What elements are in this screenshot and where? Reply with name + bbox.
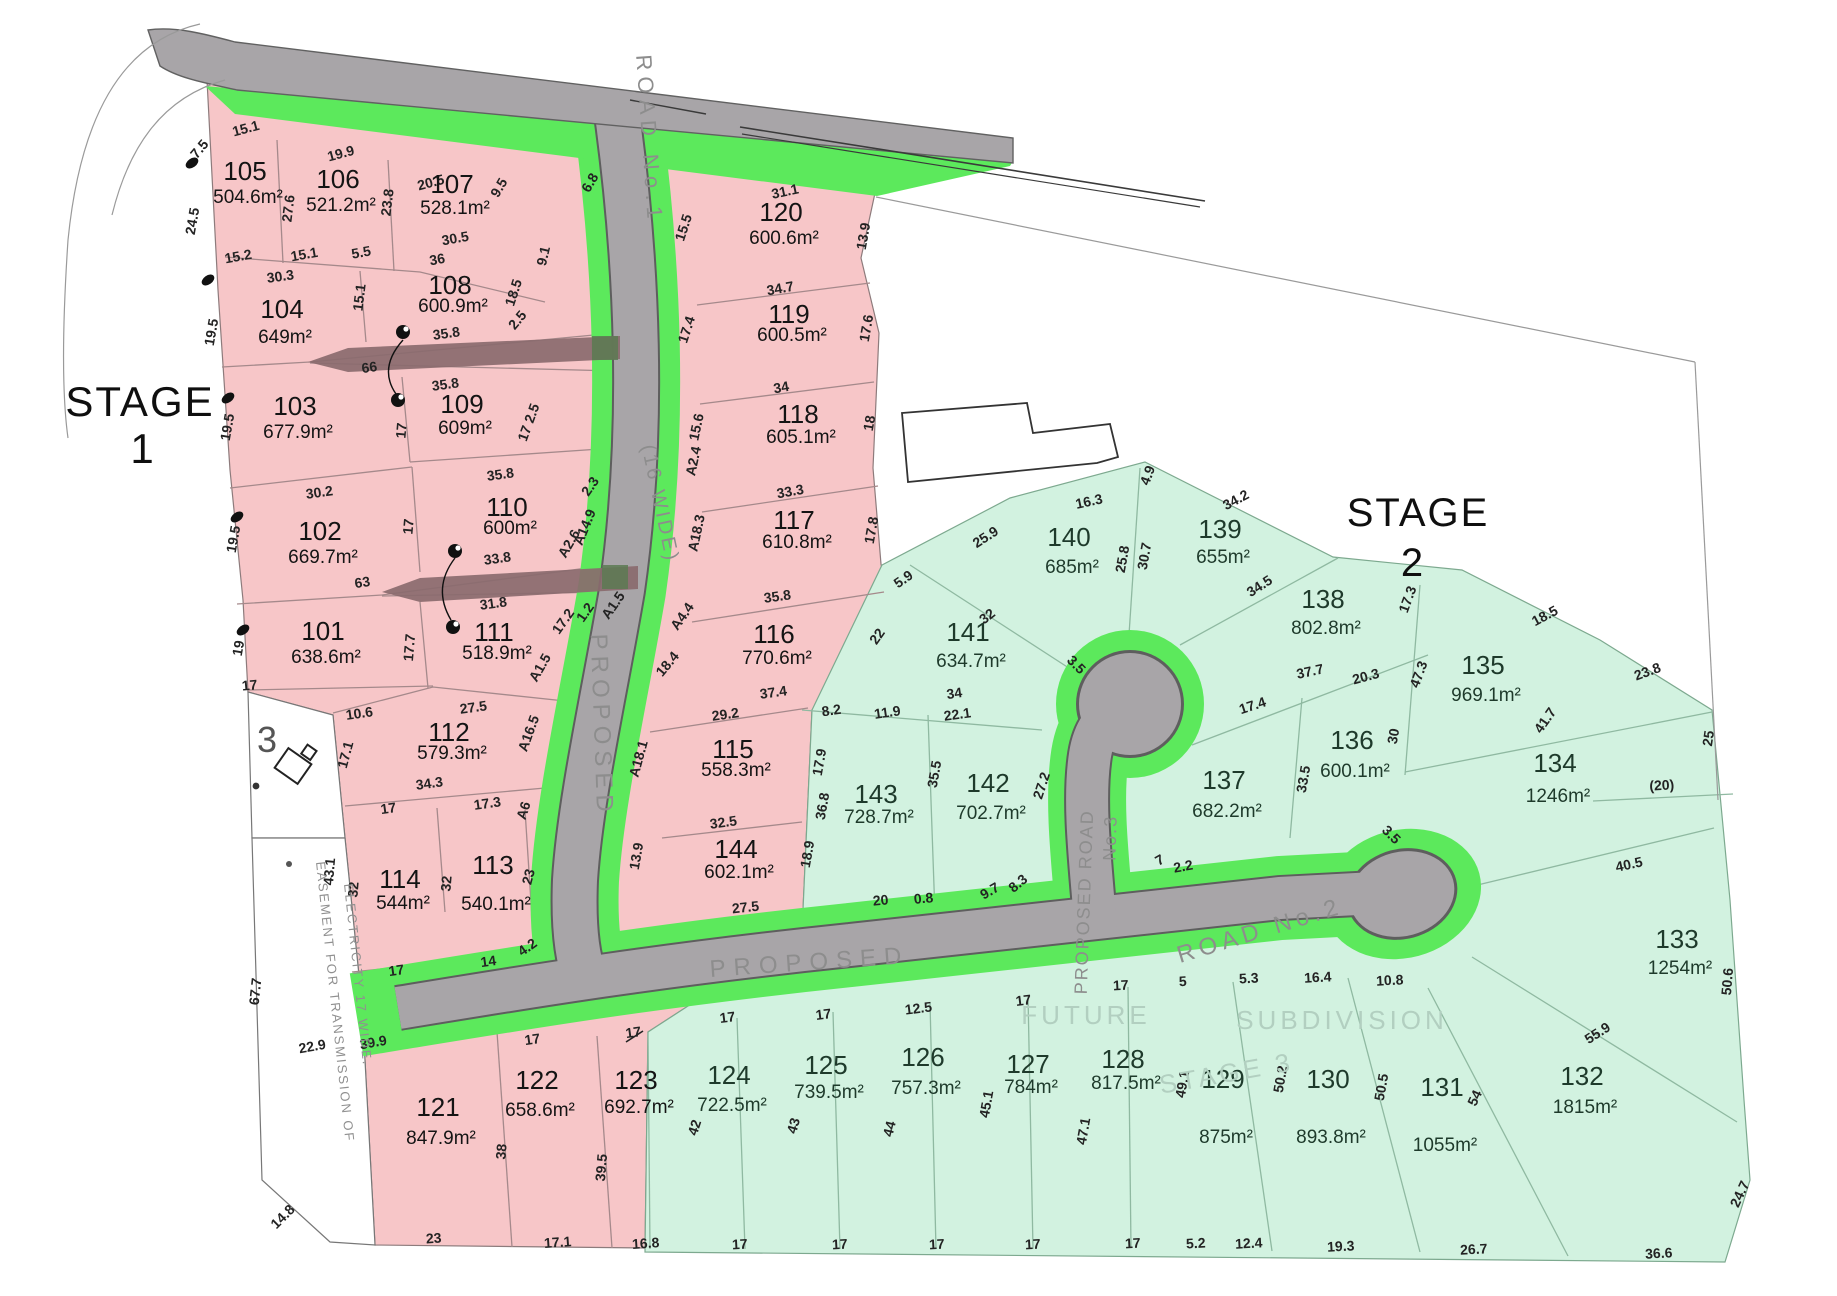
lot-area-129: 875m² xyxy=(1199,1127,1253,1148)
dimension-label-69: 17 xyxy=(379,799,397,817)
lot-area-118: 605.1m² xyxy=(766,427,836,448)
road3-name-line2: No.3 xyxy=(1099,814,1121,861)
dimension-label-48: 19 xyxy=(229,639,247,657)
lot-area-138: 802.8m² xyxy=(1291,618,1361,639)
lot-area-134: 1246m² xyxy=(1526,786,1590,807)
lot-number-131: 131 xyxy=(1420,1072,1463,1102)
lot-number-124: 124 xyxy=(707,1060,750,1090)
lot-number-120: 120 xyxy=(759,197,802,227)
dimension-label-141: (20) xyxy=(1649,776,1675,793)
lot-area-114: 544m² xyxy=(376,893,430,914)
lot-area-140: 685m² xyxy=(1045,557,1099,578)
dimension-label-7: 23.8 xyxy=(377,188,396,217)
lot-number-138: 138 xyxy=(1301,584,1344,614)
dimension-label-157: 19.3 xyxy=(1327,1237,1355,1254)
lot-area-113: 540.1m² xyxy=(461,894,531,915)
dimension-label-148: 16.4 xyxy=(1304,968,1332,985)
lot-area-102: 669.7m² xyxy=(288,547,358,568)
lot-number-132: 132 xyxy=(1560,1061,1603,1091)
lot-number-122: 122 xyxy=(515,1065,558,1095)
lot-area-141: 634.7m² xyxy=(936,651,1006,672)
dimension-label-89: 2.2 xyxy=(1172,856,1194,875)
lot-area-125: 739.5m² xyxy=(794,1082,864,1103)
lot-number-130: 130 xyxy=(1306,1064,1349,1094)
lot-number-113: 113 xyxy=(472,850,513,880)
dimension-label-99: 38 xyxy=(492,1143,509,1160)
lot-number-141: 141 xyxy=(946,617,989,647)
road3-culdesac xyxy=(1079,653,1181,755)
watermark-future: FUTURE xyxy=(1021,1000,1150,1030)
dimension-label-116: 17 xyxy=(1025,1236,1042,1253)
lot-number-139: 139 xyxy=(1198,514,1241,544)
lot-number-101: 101 xyxy=(301,616,344,646)
lot-area-144: 602.1m² xyxy=(704,862,774,883)
dimension-label-49: 17.7 xyxy=(400,633,418,662)
dimension-label-115: 17 xyxy=(929,1236,946,1253)
lot-number-117: 117 xyxy=(773,505,814,535)
existing-lot3-number: 3 xyxy=(257,719,277,760)
dimension-label-143: 50.6 xyxy=(1718,967,1736,996)
dimension-label-150: 5 xyxy=(1178,973,1187,989)
dimension-label-73: 32 xyxy=(437,875,454,892)
lot-area-117: 610.8m² xyxy=(762,532,832,553)
lot-number-144: 144 xyxy=(714,834,757,864)
dimension-label-103: 16.8 xyxy=(632,1234,661,1252)
lot-number-121: 121 xyxy=(416,1092,459,1122)
dimension-label-24: 66 xyxy=(360,358,378,376)
stage2-label-num: 2 xyxy=(1401,541,1425,585)
dimension-label-30: 18 xyxy=(860,414,878,432)
arrow2-road-overlap xyxy=(602,565,628,589)
lot-area-104: 649m² xyxy=(258,327,312,348)
lot-area-103: 677.9m² xyxy=(263,422,333,443)
dimension-label-109: 17 xyxy=(719,1008,737,1026)
lot-area-111: 518.9m² xyxy=(462,643,532,664)
lot-number-106: 106 xyxy=(316,164,359,194)
dimension-label-155: 36.6 xyxy=(1645,1244,1673,1261)
lot-number-107: 107 xyxy=(430,169,473,199)
lot-area-128: 817.5m² xyxy=(1091,1073,1161,1094)
lot-area-137: 682.2m² xyxy=(1192,801,1262,822)
dimension-label-100: 39.5 xyxy=(592,1153,610,1182)
lot-area-110: 600m² xyxy=(483,518,537,539)
lot-area-143: 728.7m² xyxy=(844,807,914,828)
dimension-label-5: 24.5 xyxy=(182,206,203,236)
dimension-label-111: 12.5 xyxy=(904,998,933,1017)
lot-area-126: 757.3m² xyxy=(891,1078,961,1099)
dimension-label-36: 17 xyxy=(399,518,416,535)
dimension-label-158: 12.4 xyxy=(1235,1234,1263,1251)
stage1-label-word: STAGE xyxy=(65,378,214,425)
lot-area-124: 722.5m² xyxy=(697,1095,767,1116)
lot-number-134: 134 xyxy=(1533,748,1576,778)
dimension-label-114: 17 xyxy=(832,1236,849,1253)
lot-number-109: 109 xyxy=(440,389,483,419)
lot-number-136: 136 xyxy=(1330,725,1373,755)
lot-area-119: 600.5m² xyxy=(757,325,827,346)
lot-area-139: 655m² xyxy=(1196,547,1250,568)
dimension-label-20: 15.1 xyxy=(349,283,368,312)
lot-number-126: 126 xyxy=(901,1042,944,1072)
lot-area-121: 847.9m² xyxy=(406,1128,476,1149)
lot-area-142: 702.7m² xyxy=(956,803,1026,824)
dimension-label-92: 17 xyxy=(387,961,405,979)
lot-number-137: 137 xyxy=(1202,765,1245,795)
lot-area-108: 600.9m² xyxy=(418,296,488,317)
lot-number-128: 128 xyxy=(1101,1044,1144,1074)
lot-area-135: 969.1m² xyxy=(1451,685,1521,706)
dimension-label-134: 30 xyxy=(1384,727,1402,745)
dimension-label-97: 67.7 xyxy=(246,977,265,1006)
dimension-label-79: 27.5 xyxy=(731,898,760,917)
lot-number-104: 104 xyxy=(260,294,303,324)
dimension-label-129: 8.2 xyxy=(821,701,843,720)
lot-number-114: 114 xyxy=(379,864,420,894)
lot-area-112: 579.3m² xyxy=(417,743,487,764)
lot-area-101: 638.6m² xyxy=(291,647,361,668)
lot-area-109: 609m² xyxy=(438,418,492,439)
lot-number-140: 140 xyxy=(1047,522,1090,552)
dimension-label-117: 17 xyxy=(1125,1235,1142,1252)
dimension-label-126: 34 xyxy=(945,684,963,702)
dimension-label-147: 10.8 xyxy=(1376,971,1404,988)
dimension-label-156: 26.7 xyxy=(1460,1240,1488,1257)
arrow1-road-overlap xyxy=(592,336,618,360)
lot-area-136: 600.1m² xyxy=(1320,761,1390,782)
dimension-label-101: 23 xyxy=(425,1229,442,1246)
dimension-label-21: 19.5 xyxy=(201,317,222,347)
dimension-label-139: 25 xyxy=(1699,729,1717,747)
lot-number-142: 142 xyxy=(966,768,1009,798)
lot-area-105: 504.6m² xyxy=(213,187,283,208)
lot-area-106: 521.2m² xyxy=(306,195,376,216)
stage2-label-word: STAGE xyxy=(1347,491,1490,535)
dimension-label-95: 17 xyxy=(523,1030,541,1048)
dimension-label-84: 20 xyxy=(872,891,889,908)
lot-number-118: 118 xyxy=(777,399,818,429)
lot-number-143: 143 xyxy=(854,779,897,809)
lot-area-116: 770.6m² xyxy=(742,648,812,669)
dimension-label-29: 34 xyxy=(772,378,790,396)
dimension-label-85: 0.8 xyxy=(913,889,934,907)
dimension-label-91: 14 xyxy=(479,952,497,970)
lot-number-116: 116 xyxy=(753,619,794,649)
lot-area-127: 784m² xyxy=(1004,1077,1058,1098)
lot-area-107: 528.1m² xyxy=(420,198,490,219)
lot-number-123: 123 xyxy=(614,1065,657,1095)
lot-area-123: 692.7m² xyxy=(604,1097,674,1118)
lot-area-133: 1254m² xyxy=(1648,958,1712,979)
stage1-label-num: 1 xyxy=(130,425,155,472)
lot-area-130: 893.8m² xyxy=(1296,1127,1366,1148)
dimension-label-110: 17 xyxy=(815,1005,833,1023)
dimension-label-12: 13.9 xyxy=(853,221,874,251)
dimension-label-0: 7.5 xyxy=(187,136,212,161)
dimension-label-96: 17 xyxy=(624,1023,642,1041)
dimension-label-151: 17 xyxy=(1113,977,1130,994)
building-outline xyxy=(902,403,1118,482)
lot-number-135: 135 xyxy=(1461,650,1504,680)
dimension-label-16: 36 xyxy=(428,250,446,268)
lot-number-103: 103 xyxy=(273,391,316,421)
dimension-label-63: 17 xyxy=(241,676,258,693)
subdivision-plan: 7.515.119.920.59.524.527.623.89.16.815.5… xyxy=(0,0,1837,1296)
lot-number-133: 133 xyxy=(1655,924,1698,954)
lot-area-132: 1815m² xyxy=(1553,1097,1617,1118)
dimension-label-41: 63 xyxy=(353,573,371,591)
lot-area-122: 658.6m² xyxy=(505,1100,575,1121)
lot-area-131: 1055m² xyxy=(1413,1135,1477,1156)
lot-area-120: 600.6m² xyxy=(749,228,819,249)
dimension-label-102: 17.1 xyxy=(544,1233,573,1251)
lot-number-102: 102 xyxy=(298,516,341,546)
lot-number-125: 125 xyxy=(804,1050,847,1080)
dimension-label-15: 5.5 xyxy=(350,242,372,261)
dimension-label-159: 5.2 xyxy=(1186,1234,1206,1251)
lot-number-127: 127 xyxy=(1006,1049,1049,1079)
lot-area-115: 558.3m² xyxy=(701,760,771,781)
dimension-label-33: 17 xyxy=(392,422,409,439)
lot-number-105: 105 xyxy=(223,156,266,186)
dimension-label-113: 17 xyxy=(732,1236,749,1253)
dimension-label-149: 5.3 xyxy=(1239,969,1259,986)
watermark-subdivision: SUBDIVISION xyxy=(1236,1005,1448,1035)
existing-building xyxy=(902,403,1118,482)
